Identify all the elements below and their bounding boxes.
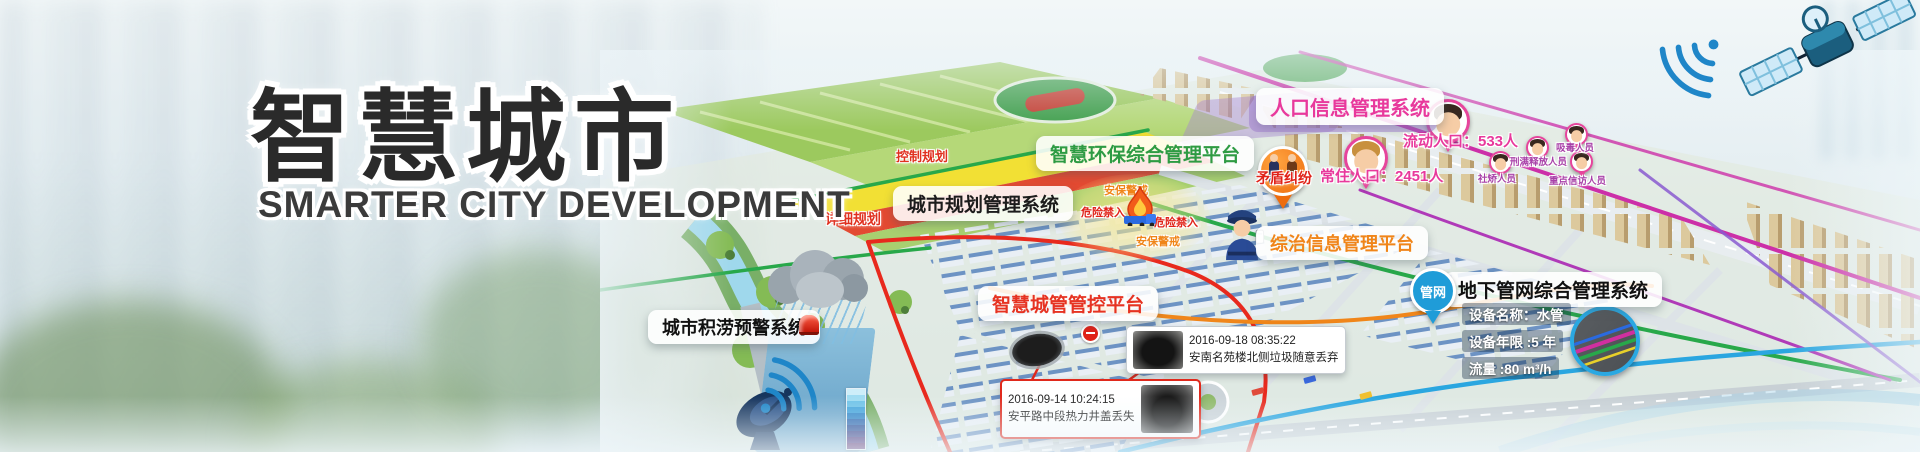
- group-label-drug-user: 吸毒人员: [1556, 140, 1594, 154]
- pipe-network-pin[interactable]: 管网: [1410, 268, 1456, 324]
- rain-legend: [846, 388, 866, 450]
- manhole-photo: [1141, 385, 1193, 433]
- event-callout-manhole: 2016-09-14 10:24:15 安平路中段热力井盖丢失: [1000, 379, 1201, 439]
- population-system-label[interactable]: 人口信息管理系统: [1256, 88, 1444, 125]
- security-alert-note: 安保警戒: [1136, 233, 1180, 249]
- group-label-community-correction: 社矫人员: [1478, 171, 1516, 185]
- planning-system-label[interactable]: 城市规划管理系统: [893, 186, 1073, 221]
- floating-population-count: 流动人口：533人: [1403, 130, 1518, 151]
- flood-warning-system-label[interactable]: 城市积涝预警系统: [648, 310, 820, 344]
- event-callout-garbage: 2016-09-18 08:35:22 安南名苑楼北侧垃圾随意丢弃: [1126, 326, 1346, 374]
- resident-population-count: 常住人口：2451人: [1320, 165, 1443, 186]
- pipe-magnifier-photo: [1570, 306, 1640, 376]
- banner-subtitle: SMARTER CITY DEVELOPMENT: [258, 184, 851, 226]
- group-label-key-petitioner: 重点信访人员: [1549, 173, 1606, 187]
- event-desc: 安平路中段热力井盖丢失: [1008, 409, 1135, 426]
- pin-tail: [1425, 311, 1441, 324]
- garbage-photo: [1133, 331, 1183, 369]
- group-label-released-prisoner: 刑满释放人员: [1510, 154, 1567, 168]
- pipe-flow: 流量 :80 m³/h: [1462, 357, 1559, 379]
- banner-title: 智慧城市: [250, 56, 682, 201]
- pipe-age: 设备年限 :5 年: [1462, 330, 1563, 352]
- governance-platform-label[interactable]: 综治信息管理平台: [1256, 226, 1428, 260]
- pipe-name: 设备名称：水管: [1462, 303, 1571, 325]
- dispute-label: 矛盾纠纷: [1256, 168, 1312, 188]
- pipe-info-panel: 设备名称：水管 设备年限 :5 年 流量 :80 m³/h: [1462, 303, 1571, 384]
- event-desc: 安南名苑楼北侧垃圾随意丢弃: [1189, 350, 1339, 367]
- control-plan-note: 控制规划: [896, 146, 948, 165]
- fire-icon: [1118, 186, 1162, 226]
- no-entry-sign-icon: [1081, 324, 1100, 343]
- rain-cloud-icon: [766, 246, 870, 310]
- alarm-light-icon: [799, 315, 819, 335]
- env-platform-label[interactable]: 智慧环保综合管理平台: [1036, 136, 1254, 171]
- smart-city-banner: 智慧城市 SMARTER CITY DEVELOPMENT 智慧环保综合管理平台…: [0, 0, 1920, 452]
- pipe-lines: [1574, 310, 1636, 372]
- city-mgmt-platform-label[interactable]: 智慧城管管控平台: [978, 286, 1158, 321]
- pipe-pin-label: 管网: [1410, 268, 1456, 314]
- pipe-network-system-label[interactable]: 地下管网综合管理系统: [1444, 272, 1662, 307]
- event-time: 2016-09-14 10:24:15: [1008, 392, 1135, 409]
- event-time: 2016-09-18 08:35:22: [1189, 333, 1339, 350]
